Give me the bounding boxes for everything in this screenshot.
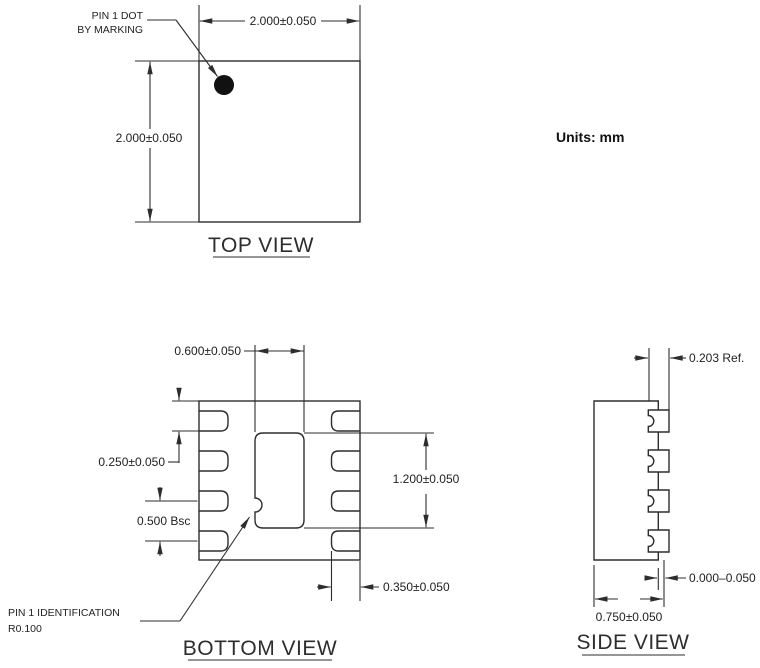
dim-terminal-width: 0.203 Ref.: [689, 351, 744, 365]
dim-pad-width: 0.600±0.050: [174, 344, 241, 358]
units-note: Units: mm: [556, 129, 624, 145]
dim-pin-edge: 0.250±0.050: [98, 455, 165, 469]
pin-pad-left-4: [199, 531, 228, 551]
dim-top-width: 2.000±0.050: [250, 14, 317, 28]
dim-thickness: 0.750±0.050: [596, 610, 663, 624]
leader-arrow: [180, 517, 250, 621]
side-view-title: SIDE VIEW: [576, 631, 689, 654]
pin-pad-right-4: [332, 531, 361, 551]
terminal-3: [648, 490, 669, 512]
top-view-title: TOP VIEW: [208, 234, 314, 257]
terminal-1: [648, 410, 669, 432]
pin1-dot-icon: [214, 75, 234, 95]
top-view: 2.000±0.050 2.000±0.050 PIN 1 DOT BY MAR…: [77, 5, 360, 257]
side-view: 0.203 Ref. 0.000–0.050 0.750±0.050 SIDE …: [576, 348, 756, 655]
pin1-id-note-line2: R0.100: [8, 623, 42, 635]
package-drawing: 2.000±0.050 2.000±0.050 PIN 1 DOT BY MAR…: [0, 0, 760, 668]
thermal-pad: [255, 433, 304, 528]
dim-standoff: 0.000–0.050: [689, 571, 756, 585]
pin1-id-note-line1: PIN 1 IDENTIFICATION: [8, 607, 120, 619]
dim-pitch: 0.500 Bsc: [137, 514, 190, 528]
pin-pad-right-3: [332, 491, 361, 511]
terminal-4: [648, 530, 669, 552]
pin-pad-left-1: [199, 411, 228, 431]
terminal-2: [648, 450, 669, 472]
pin-pad-left-2: [199, 451, 228, 471]
dim-pad-height: 1.200±0.050: [393, 472, 460, 486]
bottom-view-title: BOTTOM VIEW: [183, 637, 337, 660]
bottom-view: 0.600±0.050 0.250±0.050 0.500 Bsc 1.200±…: [8, 344, 460, 660]
drawing-svg: 2.000±0.050 2.000±0.050 PIN 1 DOT BY MAR…: [0, 0, 760, 668]
dim-pin-length: 0.350±0.050: [383, 580, 450, 594]
pin-pad-right-1: [332, 411, 361, 431]
pin1-dot-note-line1: PIN 1 DOT: [92, 10, 144, 22]
pin-pad-left-3: [199, 491, 228, 511]
leader-arrow: [176, 20, 218, 77]
pin-pad-right-2: [332, 451, 361, 471]
pin1-dot-note-line2: BY MARKING: [77, 24, 143, 36]
dim-top-height: 2.000±0.050: [116, 131, 183, 145]
package-body-bottom: [199, 401, 360, 560]
